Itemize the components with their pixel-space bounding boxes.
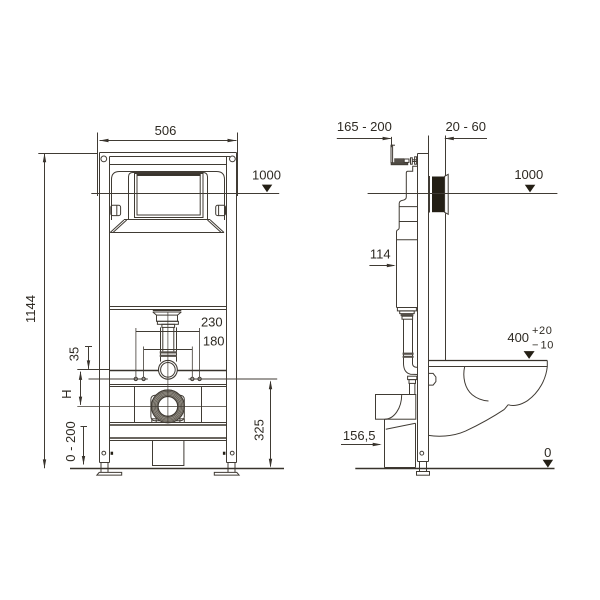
svg-text:1000: 1000 <box>252 167 281 182</box>
svg-text:0 - 200: 0 - 200 <box>63 421 78 461</box>
svg-text:− 10: − 10 <box>532 339 554 351</box>
svg-text:325: 325 <box>252 419 267 441</box>
svg-text:180: 180 <box>203 333 225 348</box>
svg-text:1000: 1000 <box>514 167 543 182</box>
svg-text:35: 35 <box>67 347 82 361</box>
svg-text:H: H <box>59 390 74 399</box>
svg-text:0: 0 <box>544 445 551 460</box>
svg-text:230: 230 <box>201 315 223 330</box>
svg-text:400: 400 <box>507 330 529 345</box>
svg-text:165 - 200: 165 - 200 <box>337 119 392 134</box>
svg-text:1144: 1144 <box>23 295 38 323</box>
svg-text:156,5: 156,5 <box>343 428 376 443</box>
svg-text:20 - 60: 20 - 60 <box>445 119 485 134</box>
svg-text:+20: +20 <box>532 325 552 337</box>
svg-text:114: 114 <box>370 246 391 261</box>
svg-text:506: 506 <box>155 123 177 138</box>
